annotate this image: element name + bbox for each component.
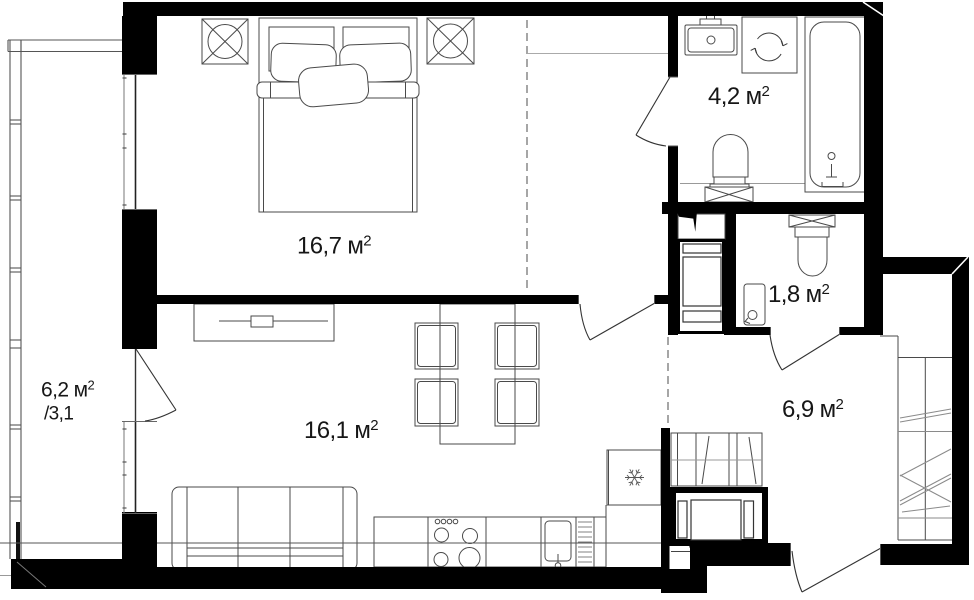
svg-text:6,9 м2: 6,9 м2 bbox=[782, 396, 844, 423]
svg-text:6,2 м2: 6,2 м2 bbox=[41, 378, 94, 402]
svg-text:/3,1: /3,1 bbox=[44, 404, 73, 425]
svg-text:16,7 м2: 16,7 м2 bbox=[297, 233, 371, 260]
svg-text:4,2 м2: 4,2 м2 bbox=[708, 83, 770, 110]
svg-text:1,8 м2: 1,8 м2 bbox=[768, 281, 830, 308]
svg-text:16,1 м2: 16,1 м2 bbox=[304, 417, 378, 444]
